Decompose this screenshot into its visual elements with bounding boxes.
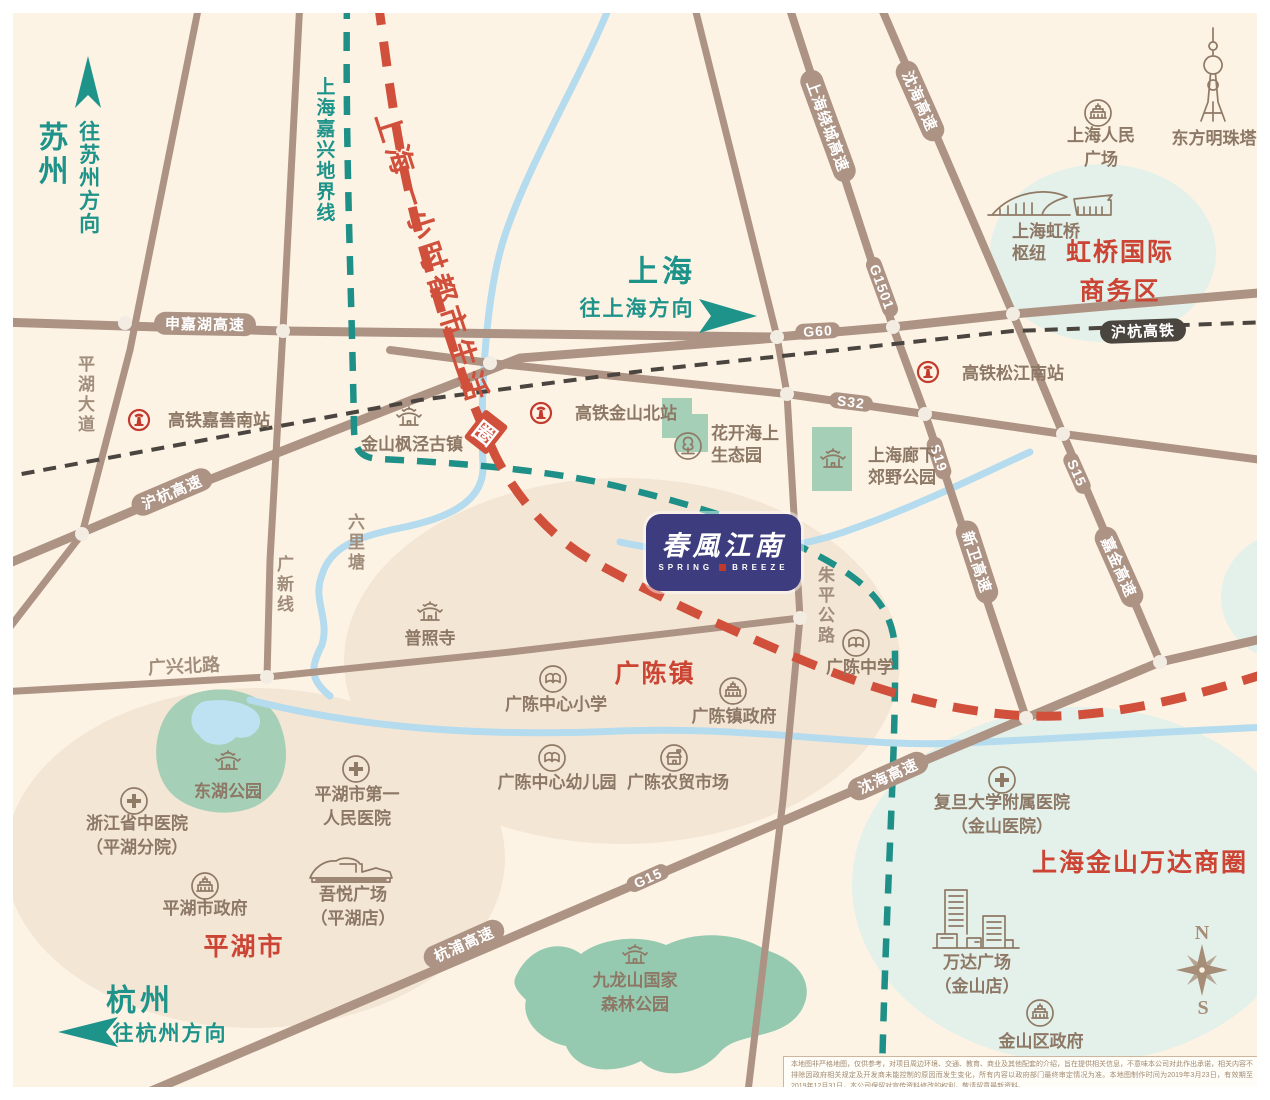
city-suzhou: 苏州 [31,121,70,189]
poi-langxia: 上海廊下 郊野公园 [868,445,936,489]
poi-renmin-hosp-line1: 平湖市第一 [315,784,400,806]
poi-jiulongshan-line1: 九龙山国家 [593,970,678,992]
poi-zhongyi-line1: 浙江省中医院 [86,813,188,835]
road-label-shenjiahu: 申嘉湖高速 [154,312,256,337]
city-shanghai: 上海 [628,253,696,292]
poi-fudan-line1: 复旦大学附属医院 [934,792,1070,814]
poi-wanda-line2: （金山店） [935,976,1020,998]
boundary-label: 上海嘉兴地界线 [311,77,336,224]
poi-renmin-hosp-line2: 人民医院 [323,808,391,830]
poi-jiulongshan: 九龙山国家 森林公园 [593,970,678,1016]
government-icon [1085,100,1111,126]
poi-jinshan-gov: 金山区政府 [999,1031,1084,1053]
poi-pinghu-gov: 平湖市政府 [163,898,248,920]
poi-fudan-hospital: 复旦大学附属医院 （金山医院） [934,792,1070,838]
logo-square-icon [719,564,726,571]
compass-south-label: S [1197,995,1208,1021]
poi-gc-market: 广陈农贸市场 [627,772,729,794]
arrow-shanghai-icon [699,299,757,333]
poi-fudan-line2: （金山医院） [951,816,1053,838]
logo-en-right: BREEZE [732,563,788,572]
poi-renmin-hospital: 平湖市第一 人民医院 [315,784,400,830]
road-label-guangxin-line: 广新线 [272,555,294,615]
poi-huakai-line1: 花开海上 [711,423,779,445]
location-map: 申嘉湖高速 G60 沪杭高速 S32 上海绕城高速 G1501 S19 新卫高速… [0,0,1270,1100]
project-logo-title: 春風江南 [662,533,786,560]
disclaimer-note: 本地图非严格地图，仅供参考，对项目周边环境、交通、教育、商业及其他配套的介绍，旨… [783,1056,1261,1092]
railway-label-hsr: 沪杭高铁 [1100,318,1187,344]
river-label-liulitang: 六里塘 [343,513,365,573]
poi-wanda-line1: 万达广场 [943,952,1011,974]
poi-hongqiao-hub-line2: 枢纽 [1012,243,1046,265]
poi-zhongyi-line2: （平湖分院） [86,837,188,859]
poi-pearl-tower: 东方明珠塔 [1172,128,1257,150]
direction-to-suzhou: 往苏州方向 [74,121,101,236]
road-label-guangxing: 广兴北路 [147,653,220,680]
park-langxia [812,427,852,491]
arrow-suzhou-icon [75,56,101,108]
poi-renmin-sq-line2: 广场 [1084,149,1118,171]
poi-renmin-sq-line1: 上海人民 [1067,125,1135,147]
project-logo-subtitle: SPRING BREEZE [658,563,788,572]
poi-huakai: 花开海上 生态园 [711,423,779,467]
poi-renmin-square: 上海人民 广场 [1067,125,1135,171]
area-wanda-circle: 上海金山万达商圈 [1032,847,1248,880]
area-hongqiao-cbd: 虹桥国际 商务区 [1066,237,1174,308]
project-logo: 春風江南 SPRING BREEZE [646,514,801,591]
poi-donghu: 东湖公园 [194,781,262,803]
poi-langxia-line2: 郊野公园 [868,467,936,489]
poi-fengjing: 金山枫泾古镇 [361,434,463,456]
poi-langxia-line1: 上海廊下 [868,445,936,467]
poi-gc-middle: 广陈中学 [826,657,894,679]
poi-wuyue: 吾悦广场 （平湖店） [311,884,396,930]
poi-jiulongshan-line2: 森林公园 [601,994,669,1016]
area-hongqiao-line2: 商务区 [1079,275,1160,308]
direction-to-hangzhou: 往杭州方向 [113,1020,228,1047]
poi-puzhao: 普照寺 [405,628,456,650]
arrow-hangzhou-icon [58,1017,118,1047]
station-jiashan-south: 高铁嘉善南站 [140,410,270,432]
station-jinshan-north: 高铁金山北站 [547,403,677,425]
station-songjiang-south: 高铁松江南站 [934,363,1064,385]
road-label-zhuping: 朱平公路 [813,566,835,646]
city-hangzhou: 杭州 [106,982,174,1021]
poi-huakai-line2: 生态园 [711,445,762,467]
direction-to-shanghai: 往上海方向 [580,295,695,322]
compass-north-label: N [1195,920,1209,946]
poi-wuyue-line2: （平湖店） [311,908,396,930]
road-label-pinghu-avenue: 平湖大道 [73,355,95,435]
pavilion-icon [397,407,421,425]
area-guangchen-town: 广陈镇 [614,658,695,691]
poi-gc-primary: 广陈中心小学 [505,694,607,716]
road-label-g60: G60 [795,322,841,340]
pearl-tower-icon [1201,28,1225,121]
poi-zhongyi-hospital: 浙江省中医院 （平湖分院） [86,813,188,859]
poi-wanda-plaza: 万达广场 （金山店） [935,952,1020,998]
poi-wuyue-line1: 吾悦广场 [319,884,387,906]
poi-gc-gov: 广陈镇政府 [692,706,777,728]
poi-gc-kindergarten: 广陈中心幼儿园 [498,772,617,794]
logo-en-left: SPRING [658,563,713,572]
area-pinghu-city: 平湖市 [203,931,284,964]
area-hongqiao-line1: 虹桥国际 [1066,237,1174,270]
